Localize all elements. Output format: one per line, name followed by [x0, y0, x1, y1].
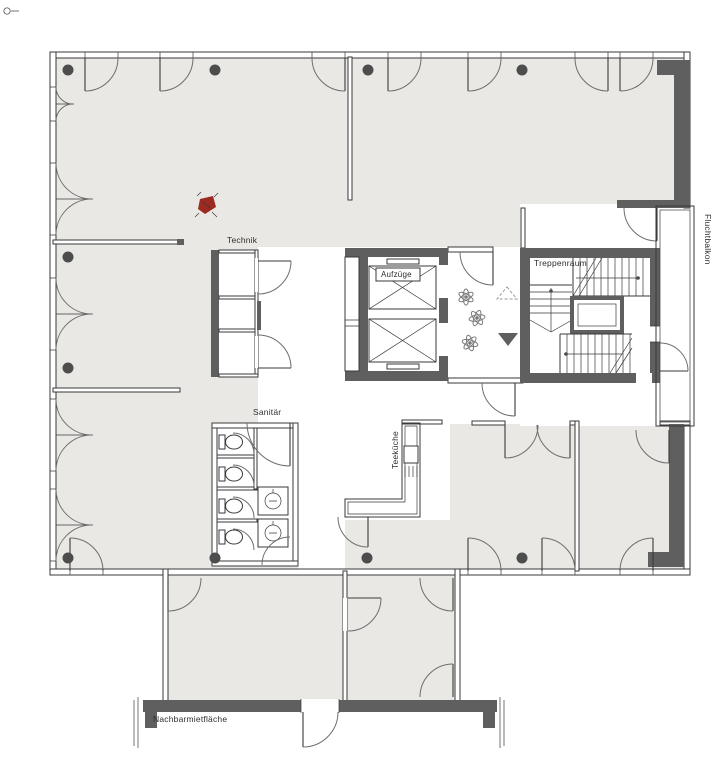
partition-left-2: [53, 388, 180, 392]
toilet-icon: [219, 530, 243, 544]
floorplan-svg: [0, 0, 724, 770]
wall-right-lower: [684, 424, 690, 575]
teekueche-sink: [404, 446, 418, 463]
partition-left-1-end: [177, 239, 184, 245]
column: [517, 553, 528, 564]
technik-dark-wall: [211, 250, 219, 377]
sanitaer-room: [212, 423, 298, 566]
lobby-wall-top: [448, 247, 493, 252]
sanitaer-label: Sanitär: [253, 408, 281, 417]
column: [362, 553, 373, 564]
treppenraum-label: Treppenraum: [534, 259, 587, 268]
aufzuege-label: Aufzüge: [381, 271, 412, 279]
nachbarmietflaeche-label: Nachbarmietfläche: [153, 715, 227, 724]
elevator-sill-bottom: [387, 364, 419, 369]
wall-y423-a: [472, 421, 505, 425]
corridor-south-zone: [298, 424, 345, 570]
column: [63, 65, 74, 76]
partition-left-1: [53, 240, 180, 244]
dark-bar-right: [617, 200, 690, 208]
teekueche-label: Teeküche: [391, 431, 400, 469]
floorplan-page: Technik Aufzüge Treppenraum Fluchtbalkon…: [0, 0, 724, 770]
dark-wall-bottomright-v: [669, 424, 684, 567]
column: [517, 65, 528, 76]
wall-bottom: [50, 569, 690, 575]
annex-wall-mid: [343, 571, 347, 702]
wall-x577: [575, 421, 579, 571]
wall-top: [50, 52, 690, 58]
toilet-icon: [219, 435, 243, 449]
wall-left: [50, 52, 56, 575]
technik-label: Technik: [227, 236, 257, 245]
nachbar-exit-door-arc: [303, 712, 338, 747]
toilet-icon: [219, 467, 243, 481]
annex-wall-left: [163, 569, 168, 702]
column: [63, 553, 74, 564]
elevator-shaft-duct: [345, 257, 359, 371]
elevator-sill-top: [387, 259, 419, 264]
partition-stub-stair: [521, 208, 525, 248]
fluchtbalkon-label: Fluchtbalkon: [704, 214, 713, 265]
column: [363, 65, 374, 76]
partition-top-center: [348, 57, 352, 200]
technik-door-leaf-closed: [257, 301, 261, 330]
stair-mid-shaft: [572, 298, 622, 332]
column: [63, 363, 74, 374]
annex-wall-right: [455, 569, 460, 702]
toilet-icon: [219, 499, 243, 513]
corner-mark: [4, 8, 19, 14]
sink-icon: [258, 487, 288, 515]
elevator-core: [345, 248, 448, 381]
dark-corner-topright-v: [674, 60, 690, 208]
column: [210, 553, 221, 564]
column: [63, 252, 74, 263]
annex-floor: [167, 571, 456, 702]
lobby-wall-bottom: [448, 378, 523, 383]
column: [210, 65, 221, 76]
